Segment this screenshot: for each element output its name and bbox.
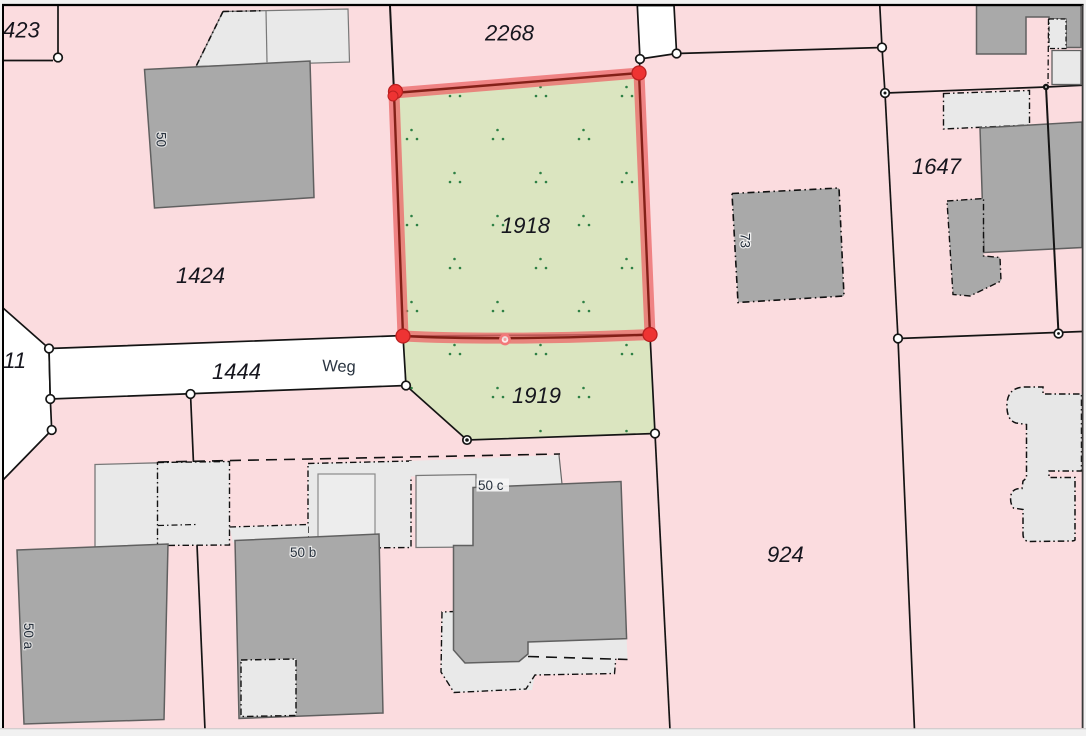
svg-text:1918: 1918 [501, 213, 551, 238]
svg-text:50 c: 50 c [478, 478, 504, 493]
svg-text:1919: 1919 [512, 383, 561, 408]
svg-text:73: 73 [738, 233, 753, 248]
svg-text:1424: 1424 [176, 263, 225, 288]
svg-text:423: 423 [3, 18, 40, 43]
svg-text:50 b: 50 b [290, 545, 316, 560]
svg-text:924: 924 [767, 542, 804, 567]
svg-text:50 a: 50 a [21, 623, 36, 650]
svg-text:Weg: Weg [322, 357, 356, 376]
svg-text:2268: 2268 [484, 21, 535, 46]
svg-text:50: 50 [154, 132, 169, 147]
svg-text:1444: 1444 [212, 359, 261, 384]
svg-text:1647: 1647 [912, 154, 962, 179]
